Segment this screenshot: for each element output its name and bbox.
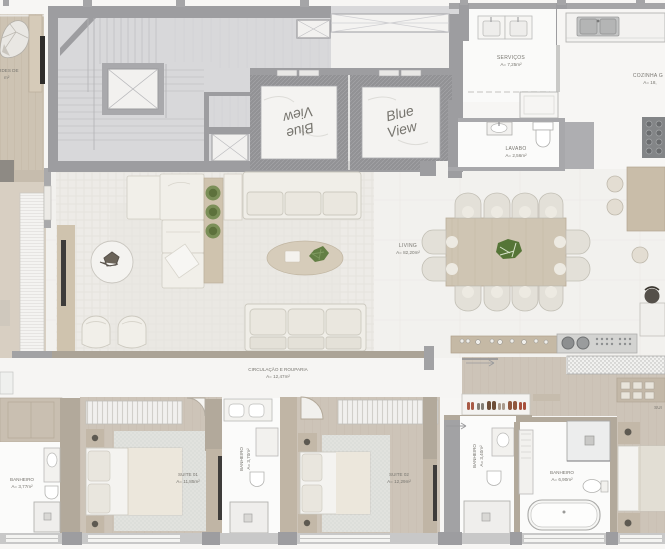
svg-text:A= 2,56m²: A= 2,56m² (505, 153, 527, 158)
svg-text:BANHEIRO: BANHEIRO (10, 477, 34, 482)
svg-text:A= 12,29m²: A= 12,29m² (387, 479, 411, 484)
svg-text:A= 82,20m²: A= 82,20m² (396, 250, 420, 255)
svg-text:BANHEIRO: BANHEIRO (550, 470, 574, 475)
svg-text:VERDES DE: VERDES DE (0, 68, 19, 73)
svg-text:SUITE 02: SUITE 02 (389, 472, 409, 477)
svg-text:SERVIÇOS: SERVIÇOS (497, 55, 526, 61)
svg-text:A= 12,47m²: A= 12,47m² (266, 374, 290, 379)
svg-text:A= 7,25m²: A= 7,25m² (500, 62, 522, 67)
svg-text:A= 3,40m²: A= 3,40m² (479, 445, 484, 467)
svg-text:CIRCULAÇÃO E ROUPARIA: CIRCULAÇÃO E ROUPARIA (248, 366, 308, 372)
svg-text:SUI: SUI (654, 405, 662, 410)
svg-text:BANHEIRO: BANHEIRO (472, 444, 477, 468)
svg-text:m²: m² (4, 75, 10, 80)
svg-text:LIVING: LIVING (399, 243, 417, 249)
svg-text:A= 3,70m²: A= 3,70m² (246, 448, 251, 470)
svg-text:SUITE 01: SUITE 01 (178, 472, 198, 477)
svg-text:LAVABO: LAVABO (505, 146, 526, 152)
svg-text:BANHEIRO: BANHEIRO (239, 447, 244, 471)
svg-text:COZINHA G: COZINHA G (633, 73, 663, 79)
svg-text:A= 6,90m²: A= 6,90m² (551, 477, 573, 482)
svg-text:A= 11,85m²: A= 11,85m² (176, 479, 200, 484)
svg-text:A= 18,: A= 18, (643, 80, 656, 85)
svg-text:A= 3,77m²: A= 3,77m² (11, 484, 33, 489)
